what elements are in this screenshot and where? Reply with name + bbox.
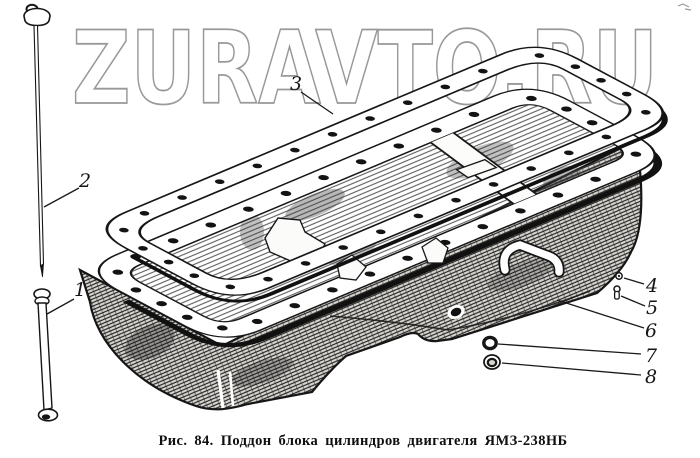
leader-8 [502, 363, 641, 375]
figure-page: ZURAVTO.RU [0, 0, 700, 458]
seal-washer-part-7 [484, 337, 496, 348]
leader-1 [47, 299, 74, 314]
dipstick-guide-tube [34, 289, 58, 421]
callout-1: 1 [74, 279, 86, 301]
leader-5 [621, 296, 645, 306]
dipstick-tip [41, 264, 44, 277]
tube-bell-opening [42, 415, 50, 420]
tube-shaft [38, 303, 52, 410]
figure-caption: Рис. 84. Поддон блока цилиндров двигател… [0, 433, 700, 450]
bolt-part-5-shank [615, 292, 620, 300]
leader-7 [498, 344, 641, 354]
leader-2 [44, 188, 79, 207]
leader-4 [624, 278, 644, 284]
dipstick-blade [34, 26, 44, 267]
oil-dipstick [24, 5, 50, 277]
callout-8: 8 [645, 366, 657, 388]
scan-artifact [678, 4, 691, 10]
callout-4: 4 [645, 275, 658, 297]
washer-part-4-center [618, 275, 620, 277]
dipstick-cap-skirt [25, 18, 50, 26]
leader-6 [557, 300, 644, 328]
oil-pan-diagram: ZURAVTO.RU [0, 0, 700, 458]
callout-5: 5 [646, 297, 658, 319]
drain-plug-part-8-hex [488, 359, 496, 366]
callout-3: 3 [290, 73, 302, 95]
callout-2: 2 [78, 170, 91, 192]
callout-7: 7 [645, 345, 658, 367]
callout-6: 6 [645, 320, 657, 342]
